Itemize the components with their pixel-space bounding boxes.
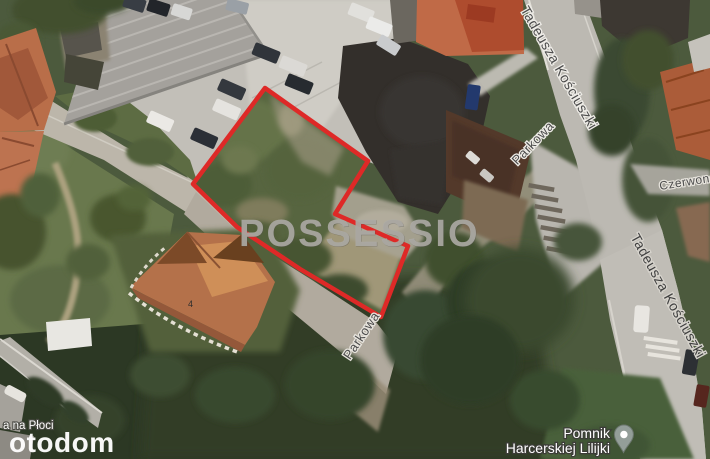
svg-text:otodom: otodom xyxy=(9,427,115,458)
svg-text:POSSESSIO: POSSESSIO xyxy=(239,213,480,255)
svg-text:4: 4 xyxy=(188,299,193,309)
svg-text:Harcerskiej Lilijki: Harcerskiej Lilijki xyxy=(506,440,610,456)
svg-text:Pomnik: Pomnik xyxy=(563,425,611,441)
